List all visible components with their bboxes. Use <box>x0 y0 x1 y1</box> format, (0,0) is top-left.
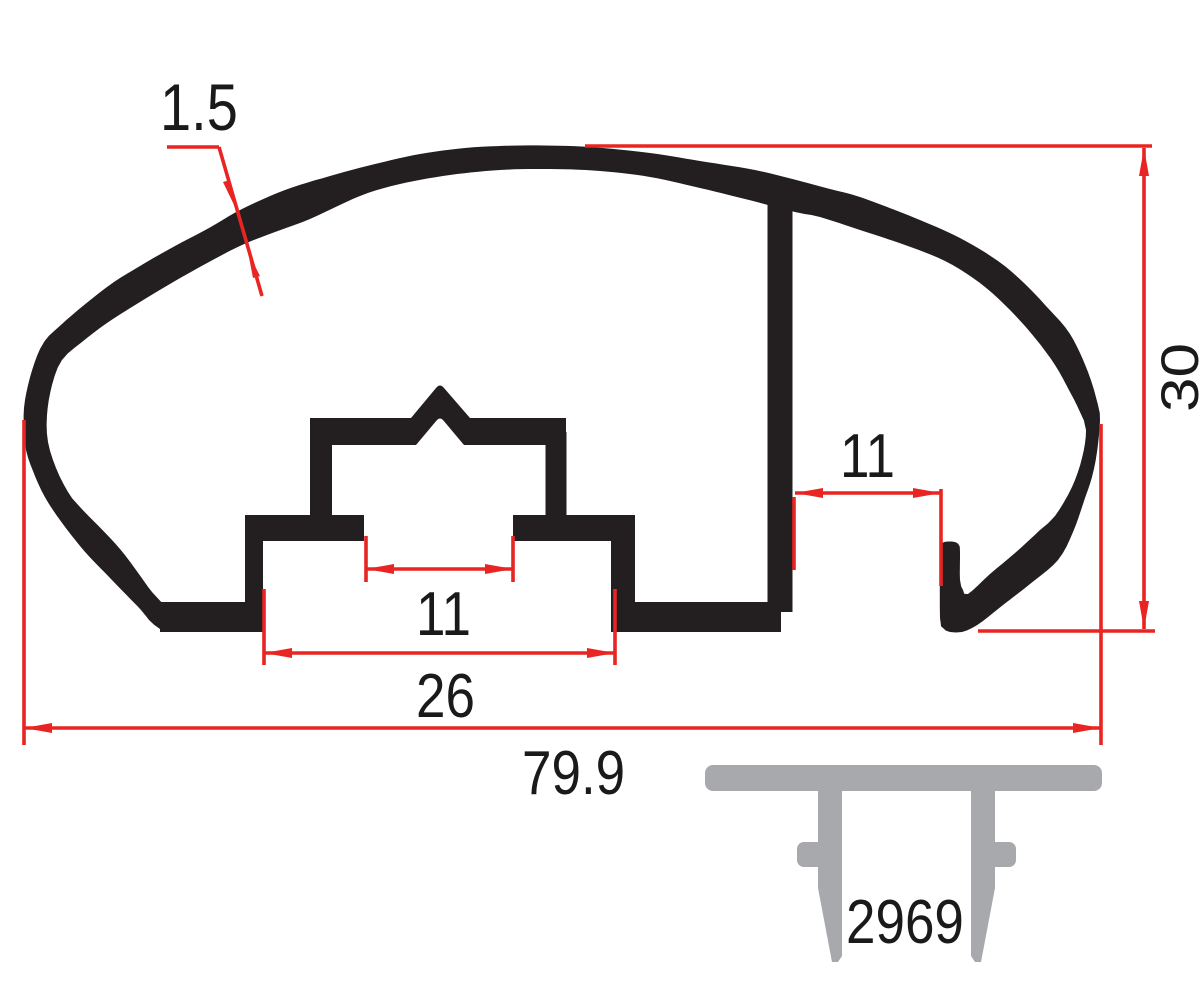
svg-text:2969: 2969 <box>846 888 964 957</box>
svg-text:26: 26 <box>416 662 475 731</box>
svg-text:11: 11 <box>840 422 895 491</box>
svg-text:1.5: 1.5 <box>160 71 238 144</box>
svg-text:11: 11 <box>416 580 471 649</box>
svg-text:30: 30 <box>1151 343 1200 412</box>
svg-text:79.9: 79.9 <box>522 739 625 808</box>
